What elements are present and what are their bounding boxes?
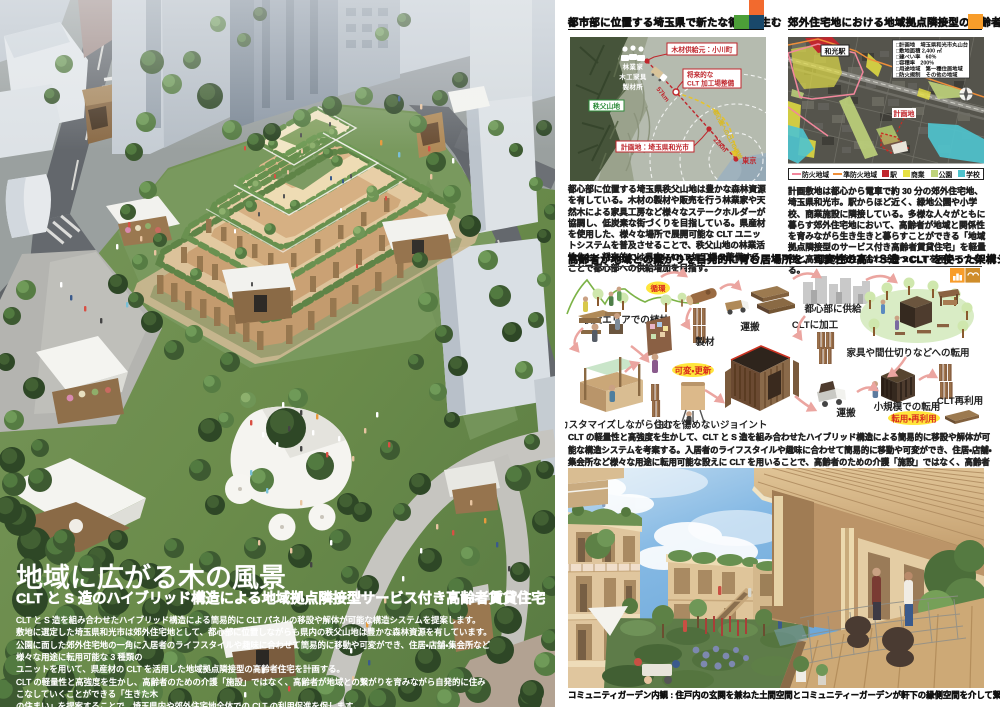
svg-text:将来的な: 将来的な <box>686 70 714 79</box>
svg-text:小規模での転用: 小規模での転用 <box>873 401 941 413</box>
svg-text:秩父山地: 秩父山地 <box>593 102 620 111</box>
svg-text:運搬: 運搬 <box>740 321 760 333</box>
svg-text:□防火規制 その他の地域: □防火規制 その他の地域 <box>896 71 958 79</box>
svg-text:林業家: 林業家 <box>623 62 644 71</box>
svg-text:製材所: 製材所 <box>622 82 644 91</box>
svg-text:□建ぺい率 60%: □建ぺい率 60% <box>896 53 937 61</box>
svg-text:循環: 循環 <box>650 283 666 293</box>
svg-text:計画地: 計画地 <box>894 109 915 118</box>
svg-text:運搬: 運搬 <box>836 407 856 419</box>
svg-text:計画地：埼玉県和光市: 計画地：埼玉県和光市 <box>621 143 689 152</box>
svg-text:□敷地面積 2,400 ㎡: □敷地面積 2,400 ㎡ <box>896 47 943 55</box>
svg-text:製材: 製材 <box>694 336 715 348</box>
svg-text:可変・更新: 可変・更新 <box>675 366 712 376</box>
svg-text:木材供給元：小川町: 木材供給元：小川町 <box>670 45 732 54</box>
svg-text:東京: 東京 <box>741 156 756 165</box>
svg-text:□計画地 埼玉県和光市丸山台: □計画地 埼玉県和光市丸山台 <box>896 41 969 49</box>
svg-text:CLTを傷めないジョイント: CLTを傷めないジョイント <box>655 419 768 430</box>
svg-text:和光駅: 和光駅 <box>824 47 847 56</box>
svg-text:都心部に供給: 都心部に供給 <box>803 303 862 315</box>
svg-text:CLT再利用: CLT再利用 <box>937 395 983 407</box>
svg-text:木工家具: 木工家具 <box>618 72 647 81</box>
svg-text:□用途地域 第一種住居地域: □用途地域 第一種住居地域 <box>896 65 963 73</box>
svg-text:家具や間仕切りなどへの転用: 家具や間仕切りなどへの転用 <box>846 347 969 359</box>
svg-text:転用・再利用: 転用・再利用 <box>891 414 936 424</box>
svg-text:CLT 加工場整備: CLT 加工場整備 <box>687 79 735 88</box>
svg-text:□容積率 200%: □容積率 200% <box>896 59 934 67</box>
